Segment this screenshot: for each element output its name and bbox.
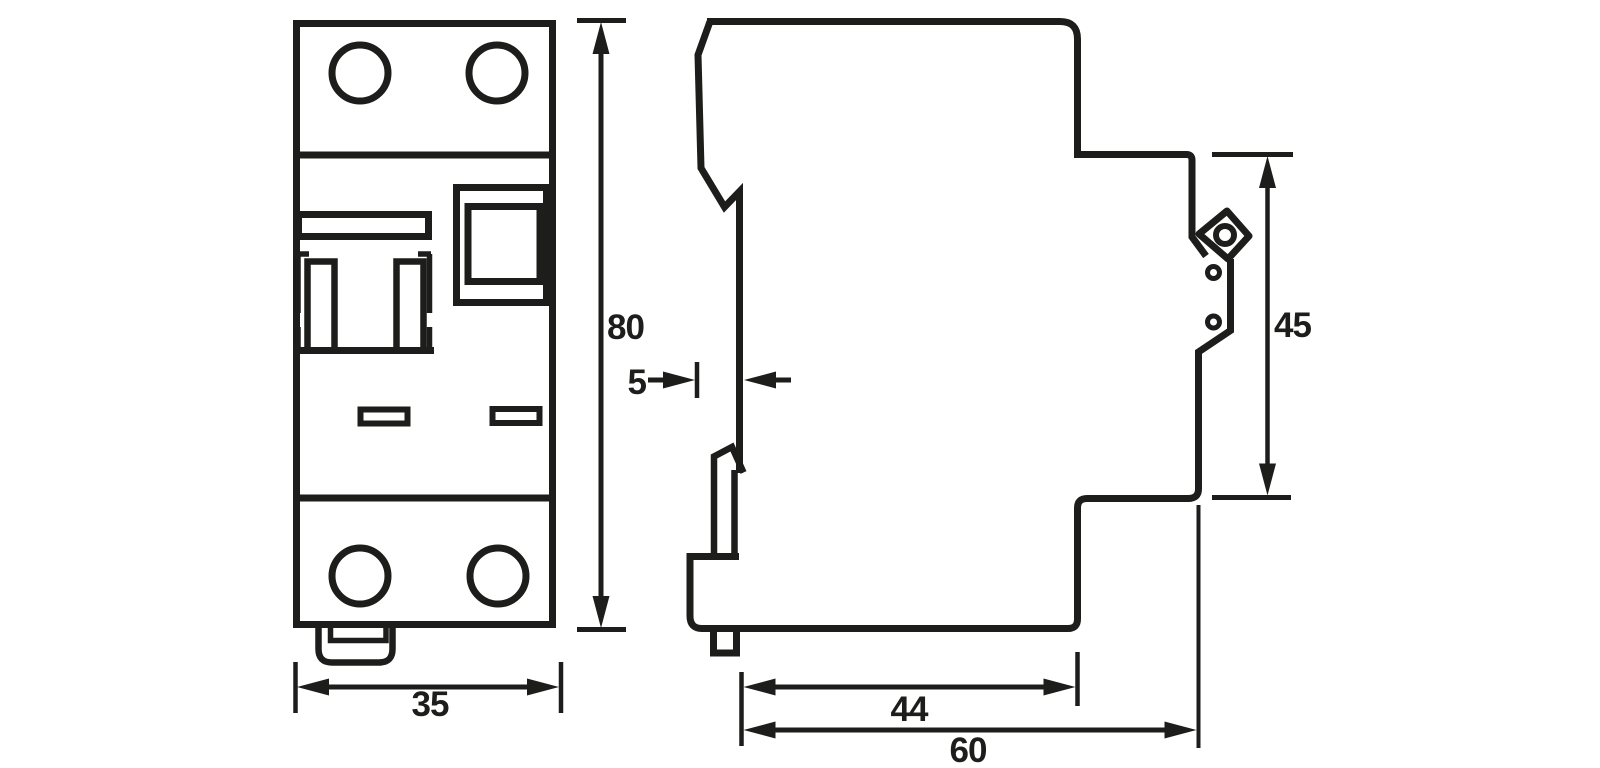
dim-80-arrow-down [593,596,610,628]
side-profile-body [690,259,1231,629]
dim-44-arrow-right [1044,679,1076,696]
dim-44-label: 44 [891,690,929,729]
dim-5-label: 5 [628,363,647,402]
dim-80-label: 80 [607,308,644,347]
dim-80-arrow-up [593,22,610,54]
switch-toggle-right [397,262,424,352]
side-hole-lower [1208,316,1220,328]
dimension-drawing: 80 35 5 45 44 [0,0,1600,768]
dim-35-arrow-right [527,679,559,696]
side-profile-top [707,22,1206,257]
dim-depth-60: 60 [744,505,1199,768]
technical-drawing-page: 80 35 5 45 44 [0,0,1600,768]
dim-60-label: 60 [950,731,987,768]
din-latch [714,447,744,556]
din-clip-front-inner [331,628,387,641]
front-view [293,24,556,663]
switch-toggle-left [308,262,335,352]
dim-width-35: 35 [296,662,562,724]
terminal-screw-bottom-left [332,548,388,604]
dim-35-arrow-left [297,679,329,696]
indicator-window-right [493,409,540,423]
test-button-inner [468,207,540,282]
dim-45-arrow-up [1259,156,1276,188]
switch-lever [294,215,434,353]
side-profile-rear [698,22,740,474]
dim-45-arrow-down [1259,464,1276,496]
side-hole-upper [1208,267,1220,279]
terminal-screw-top-right [469,45,525,101]
dim-60-arrow-left [744,722,776,739]
dim-60-arrow-right [1165,722,1197,739]
dim-44-arrow-left [744,679,776,696]
terminal-screw-bottom-right [470,548,526,604]
dim-5-arrow-left-pointing [744,372,776,389]
switch-frame [299,215,429,237]
dim-offset-5: 5 [628,362,791,402]
terminal-screw-top-left [332,45,388,101]
dim-45-label: 45 [1274,306,1311,345]
dim-height-45: 45 [1212,155,1311,498]
dim-5-arrow-right-pointing [663,372,695,389]
dim-height-80: 80 [577,21,644,630]
side-view [690,22,1249,654]
dim-35-label: 35 [412,685,449,724]
indicator-window-left [361,410,408,424]
